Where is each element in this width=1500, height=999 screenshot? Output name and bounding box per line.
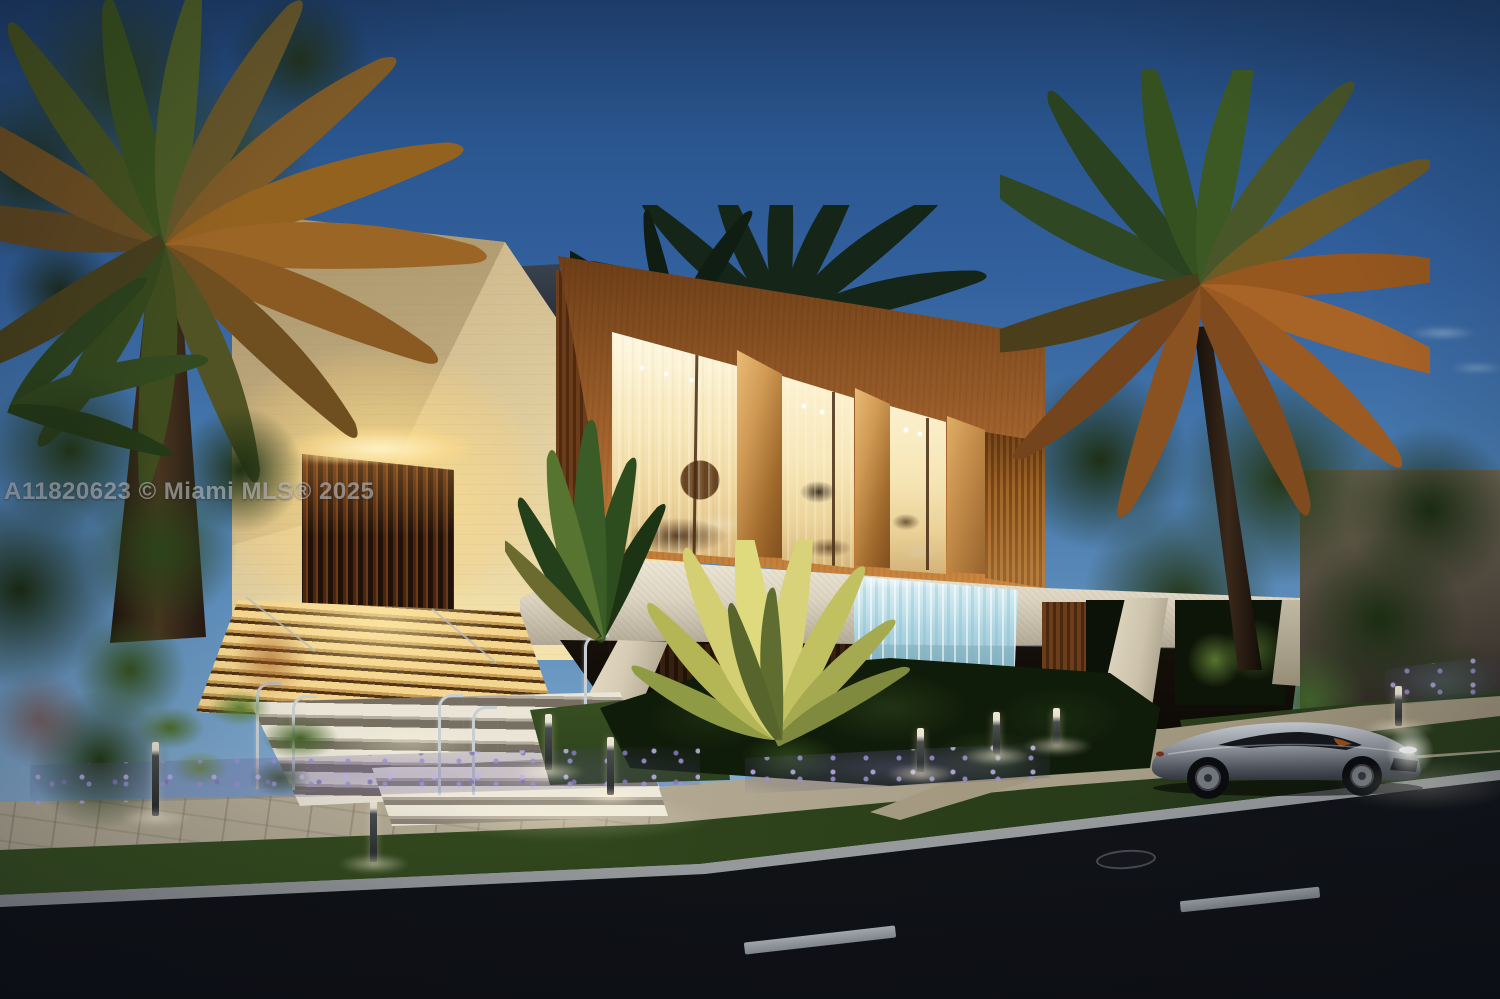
mls-watermark: A11820623 © Miami MLS® 2025 <box>4 478 374 506</box>
window-mullion <box>926 418 929 570</box>
lit-palm-plant <box>625 540 925 760</box>
stair-glow-sidewalk <box>420 792 720 842</box>
bollard-light <box>370 800 377 862</box>
bollard-light-pool <box>885 764 957 784</box>
car-headlight <box>1399 747 1417 754</box>
car-taillight <box>1156 752 1164 757</box>
bollard-light-pool <box>120 808 192 828</box>
listing-photo: A11820623 © Miami MLS® 2025 <box>0 0 1500 999</box>
bollard-light-pool <box>1021 736 1093 756</box>
bollard-light <box>152 742 159 816</box>
bollard-light-pool <box>338 854 410 874</box>
wood-fin-3 <box>944 412 988 578</box>
wood-fin-1 <box>735 344 785 562</box>
bollard-light-pool <box>513 762 585 782</box>
right-palm-tree <box>1000 70 1430 680</box>
bollard-light-pool <box>575 787 647 807</box>
headlight-road-glow <box>1330 760 1500 810</box>
